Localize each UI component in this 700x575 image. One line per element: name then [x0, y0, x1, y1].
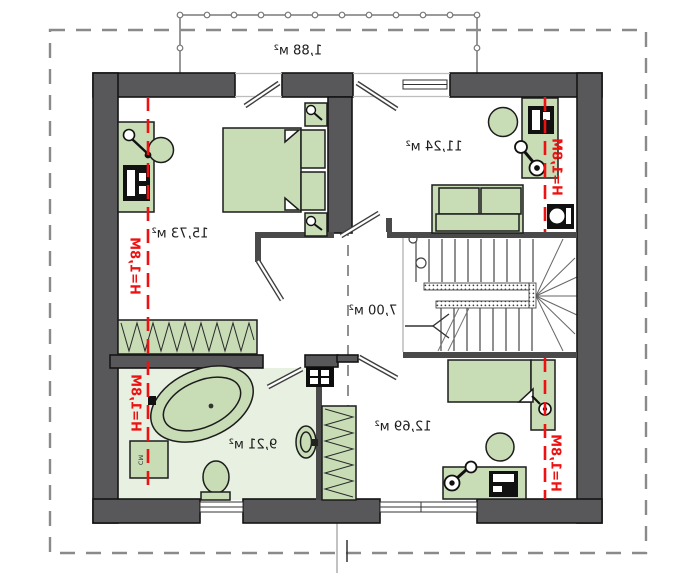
chimney-icon	[306, 367, 334, 387]
door-jamb	[337, 355, 358, 362]
stair-treads-upper	[416, 239, 533, 282]
wall-right	[577, 73, 602, 523]
wall-bottom-right	[477, 499, 602, 523]
toilet-icon	[201, 461, 230, 500]
wall-left	[93, 73, 118, 523]
wall-top-center	[282, 73, 353, 97]
railing-posts	[177, 12, 480, 51]
window-bathroom	[200, 502, 243, 512]
balcony-door-left	[245, 83, 279, 106]
stair-winders	[536, 239, 577, 351]
stair-direction-arrow	[405, 314, 449, 338]
boiler-icon	[547, 204, 574, 229]
window-bedroom-bottom	[380, 502, 477, 512]
sofa-icon	[432, 185, 523, 233]
single-bed-icon	[448, 360, 555, 430]
bedroom-left-area-label: 15,73 м²	[151, 227, 208, 242]
pc-icon	[123, 165, 150, 201]
stair-posts	[409, 235, 426, 268]
wall-bottom-center	[243, 499, 380, 523]
pc-icon	[489, 471, 518, 497]
round-table-icon	[489, 108, 518, 137]
balcony-railing	[177, 12, 480, 73]
bedroom-bottom-area-label: 12,69 м²	[374, 420, 431, 435]
balcony-area-label: 1,88 м²	[274, 44, 323, 59]
window-top	[403, 80, 447, 89]
study-area-label: 11,24 м²	[405, 140, 462, 155]
floor-plan-drawing: 1,88 м² 15,73 м² 11,24 м² 7,00 м² 9,21 м…	[0, 0, 700, 575]
wall-bottom-left	[93, 499, 200, 523]
double-bed-icon	[223, 128, 325, 212]
stool-icon	[486, 433, 514, 461]
staircase	[403, 235, 577, 352]
bathroom-area-label: 9,21 м²	[229, 438, 278, 453]
hall-area-label: 7,00 м²	[349, 304, 398, 319]
wardrobe-icon	[322, 406, 356, 500]
desk-chair-icon	[149, 138, 174, 163]
bedroom-left-door	[258, 261, 282, 300]
height-mark-label: H=1,8M	[547, 434, 562, 492]
wall-bathroom-top	[110, 355, 263, 368]
wardrobe-icon	[118, 320, 257, 354]
stair-railing-band	[424, 283, 536, 308]
wall-above-chimney	[305, 355, 338, 367]
floor-plan-page: 1,88 м² 15,73 м² 11,24 м² 7,00 м² 9,21 м…	[0, 0, 700, 575]
washing-machine-label: СМ	[137, 455, 145, 465]
height-mark-label: H=1,8M	[127, 374, 142, 432]
stair-treads-lower	[441, 308, 532, 351]
height-mark-label: H=1,8M	[126, 237, 141, 295]
pc-icon	[528, 106, 554, 134]
basin-tap-icon	[311, 439, 318, 446]
bedroom-bottom-door	[359, 357, 397, 378]
wall-bedroom-hall	[328, 97, 352, 233]
height-mark-label: H=1,8M	[548, 138, 563, 196]
